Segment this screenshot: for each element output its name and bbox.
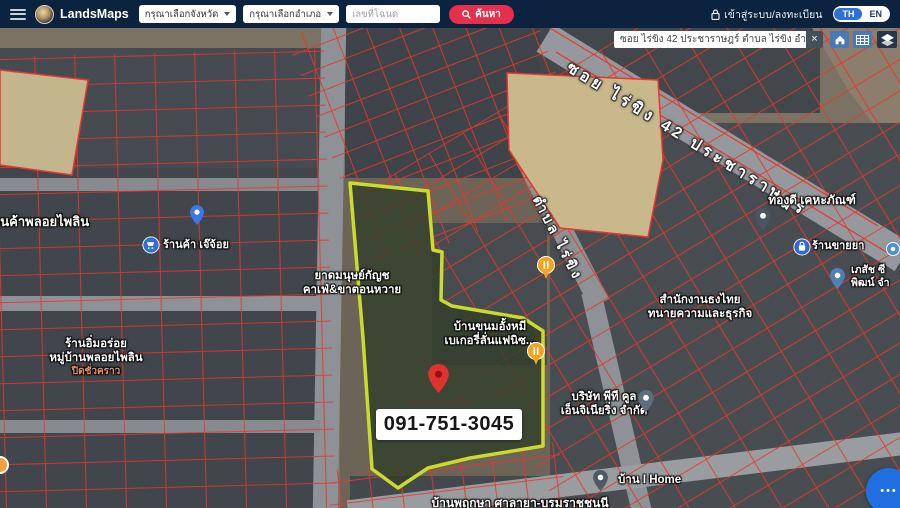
- chevron-down-icon: [224, 12, 230, 16]
- blue-pin-marker[interactable]: [830, 268, 845, 289]
- gray-pin-marker[interactable]: [755, 208, 771, 230]
- grid-view-button[interactable]: [853, 31, 872, 48]
- lang-en-button[interactable]: EN: [862, 8, 889, 20]
- search-button-label: ค้นหา: [475, 7, 501, 22]
- search-button[interactable]: ค้นหา: [449, 5, 514, 24]
- province-select[interactable]: กรุณาเลือกจังหวัด: [139, 5, 237, 23]
- parcel-caption: ตำแหน่งแปลงที่ดิน: [407, 396, 471, 409]
- satellite-map-canvas[interactable]: ซอย ไร่ขิง 42 ประชาราษฎร์ ตำบล ไร่ขิง ร้…: [0, 28, 900, 508]
- province-select-value: กรุณาเลือกจังหวัด: [145, 7, 219, 22]
- poi-label: สำนักงานธงไทย ทนายความและธุรกิจ: [648, 294, 752, 322]
- poi-label: ร้านค้า เจ๊จ้อย: [163, 239, 229, 252]
- blue-pin-marker[interactable]: [190, 205, 204, 225]
- search-icon: [462, 10, 471, 19]
- table-grid-icon: [856, 35, 869, 45]
- address-result-chip: ซอย ไร่ขิง 42 ประชาราษฎร์ ตำบล ไร่ขิง อำ…: [614, 31, 806, 48]
- gray-pin-marker[interactable]: [593, 470, 608, 491]
- poi-label: บ้าน I Home: [618, 474, 681, 488]
- blue-dot-marker[interactable]: [886, 242, 900, 256]
- app-title: LandsMaps: [60, 7, 129, 21]
- layers-button[interactable]: [877, 31, 897, 48]
- lock-icon: [711, 9, 720, 20]
- map-toolbar: ซอย ไร่ขิง 42 ประชาราษฎร์ ตำบล ไร่ขิง อำ…: [614, 31, 897, 48]
- poi-label: ร้านอิ่มอร่อย หมู่บ้านพลอยไพลิน ปิดชั่วค…: [49, 338, 142, 378]
- poi-label: ร้านขายยา: [812, 240, 864, 253]
- gray-pin-marker[interactable]: [638, 390, 654, 412]
- district-select[interactable]: กรุณาเลือกอำเภอ: [243, 5, 339, 23]
- poi-label: บริษัท พีที คูล เอ็นจิเนียริ่ง จำกัด: [561, 391, 648, 419]
- close-icon[interactable]: ×: [806, 31, 823, 48]
- lang-th-button[interactable]: TH: [834, 8, 862, 20]
- poi-label: เภสัช ซี พิฒน์ จำ: [851, 264, 890, 289]
- login-register-label: เข้าสู่ระบบ/ลงทะเบียน: [724, 6, 822, 23]
- restaurant-marker[interactable]: [526, 342, 546, 366]
- fab-dots: •••: [880, 485, 898, 497]
- landsmaps-logo: [35, 5, 54, 24]
- language-toggle: TH EN: [833, 6, 890, 22]
- shop-cart-marker[interactable]: [142, 236, 160, 254]
- home-icon: [834, 34, 846, 45]
- parcel-location-pin: [428, 364, 449, 393]
- poi-label: ทองดี เคหะภัณฑ์: [768, 193, 856, 207]
- temporarily-closed-badge: ปิดชั่วคราว: [49, 366, 142, 378]
- hamburger-menu-icon[interactable]: [10, 9, 26, 20]
- poi-label: ยาดมนุษย์กัญช คาเฟ่&ขาตอนหวาย: [303, 270, 401, 298]
- district-select-value: กรุณาเลือกอำเภอ: [249, 7, 321, 22]
- restaurant-marker[interactable]: [536, 256, 556, 280]
- deed-number-input[interactable]: [346, 5, 440, 23]
- home-button[interactable]: [830, 31, 849, 48]
- poi-label: บ้านพฤกษา ศาลายา-บรมราชชนนี: [431, 496, 608, 508]
- pharmacy-marker[interactable]: [793, 238, 811, 256]
- top-navbar: LandsMaps กรุณาเลือกจังหวัด กรุณาเลือกอำ…: [0, 0, 900, 28]
- poi-label: บ้านขนมอั้งหมี เบเกอรี่ลั่นแฟนิซ...: [445, 321, 536, 349]
- phone-number: 091-751-3045: [384, 413, 515, 436]
- chevron-down-icon: [327, 12, 333, 16]
- poi-label: ร้านค้าพลอยไพลิน: [0, 214, 89, 230]
- layers-icon: [881, 34, 894, 46]
- login-register-link[interactable]: เข้าสู่ระบบ/ลงทะเบียน: [711, 6, 822, 23]
- phone-number-chip: 091-751-3045: [376, 409, 522, 440]
